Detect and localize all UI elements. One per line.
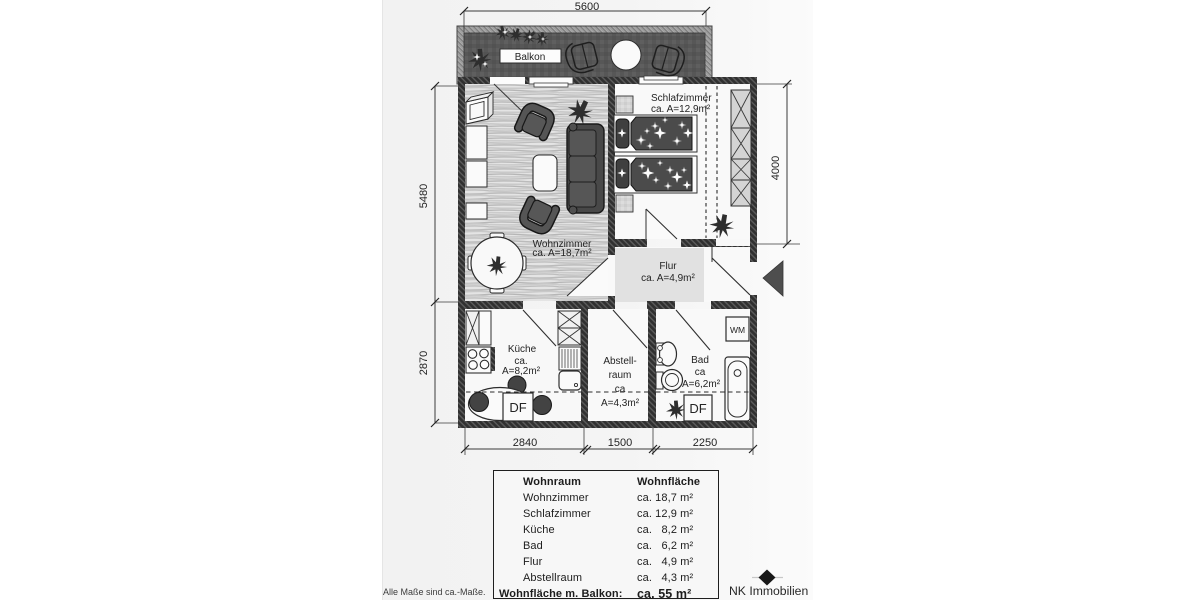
svg-text:A=6,2m²: A=6,2m² — [682, 379, 721, 390]
svg-text:Flur: Flur — [659, 261, 677, 272]
svg-text:Bad: Bad — [691, 355, 709, 366]
svg-text:ca: ca — [615, 384, 626, 395]
svg-text:A=8,2m²: A=8,2m² — [502, 366, 541, 377]
svg-text:WM: WM — [730, 325, 745, 335]
svg-text:4000: 4000 — [770, 156, 782, 180]
svg-text:2870: 2870 — [418, 351, 430, 375]
svg-text:ca: ca — [695, 367, 706, 378]
svg-text:Balkon: Balkon — [515, 52, 546, 63]
svg-text:ca. A=12,9m²: ca. A=12,9m² — [651, 104, 711, 115]
svg-text:5480: 5480 — [418, 184, 430, 208]
svg-text:DF: DF — [509, 400, 526, 415]
svg-text:raum: raum — [609, 370, 632, 381]
svg-text:Abstell-: Abstell- — [603, 356, 636, 367]
svg-text:DF: DF — [689, 401, 706, 416]
svg-text:2250: 2250 — [693, 437, 717, 449]
svg-text:Schlafzimmer: Schlafzimmer — [651, 93, 712, 104]
svg-text:Küche: Küche — [508, 344, 537, 355]
svg-text:A=4,3m²: A=4,3m² — [601, 398, 640, 409]
svg-text:1500: 1500 — [608, 437, 632, 449]
svg-text:ca. A=18,7m²: ca. A=18,7m² — [532, 248, 592, 259]
svg-text:NK Immobilien: NK Immobilien — [729, 584, 808, 598]
svg-text:5600: 5600 — [575, 1, 599, 13]
svg-text:ca. A=4,9m²: ca. A=4,9m² — [641, 273, 695, 284]
svg-text:2840: 2840 — [513, 437, 537, 449]
